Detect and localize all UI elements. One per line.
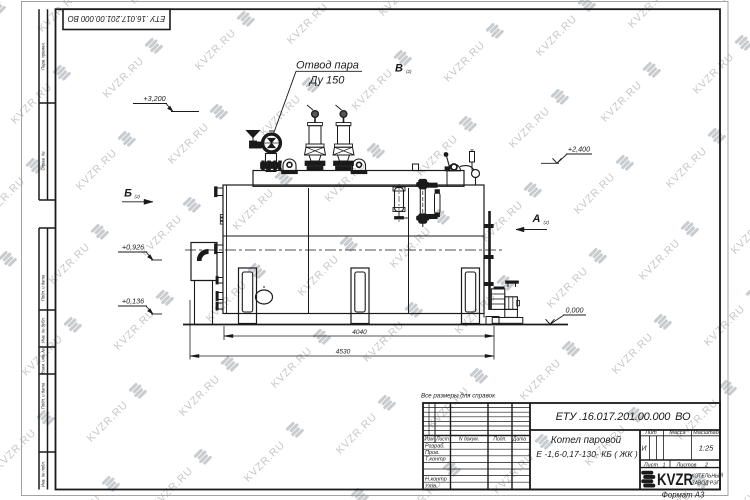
svg-text:Н.контр: Н.контр	[425, 477, 447, 483]
svg-text:(2): (2)	[135, 194, 141, 199]
svg-text:Листов: Листов	[675, 462, 696, 468]
svg-text:Масса: Масса	[669, 430, 685, 436]
svg-text:Масштаб: Масштаб	[693, 430, 720, 436]
svg-text:+0,136: +0,136	[122, 297, 144, 306]
svg-text:Т.контр: Т.контр	[425, 457, 446, 463]
svg-text:2: 2	[704, 462, 708, 468]
svg-text:Отвод пара: Отвод пара	[296, 60, 359, 72]
svg-text:ЕТУ .16.017.201.00.000 ВО: ЕТУ .16.017.201.00.000 ВО	[68, 14, 166, 23]
svg-text:N докум.: N докум.	[459, 437, 479, 443]
svg-text:КОТЕЛЬНЫЙ: КОТЕЛЬНЫЙ	[692, 472, 724, 480]
svg-text:Лист: Лист	[643, 462, 659, 468]
svg-text:Подп. и дата: Подп. и дата	[41, 382, 46, 409]
svg-text:+0,926: +0,926	[122, 243, 144, 252]
svg-text:ЗАВОД РЭП: ЗАВОД РЭП	[692, 481, 721, 487]
svg-text:KVZR: KVZR	[657, 471, 693, 490]
svg-text:Перв. примен.: Перв. примен.	[41, 42, 46, 70]
svg-text:Е -1,6-0,17-130- КБ ( ЖК ): Е -1,6-0,17-130- КБ ( ЖК )	[536, 449, 638, 459]
svg-text:1: 1	[662, 462, 665, 468]
svg-text:1:25: 1:25	[699, 444, 714, 453]
svg-text:4530: 4530	[336, 349, 351, 356]
svg-text:(2): (2)	[406, 69, 412, 74]
svg-text:Подп. и дата: Подп. и дата	[41, 274, 46, 301]
svg-text:Подп.: Подп.	[493, 437, 506, 443]
svg-text:ЕТУ .16.017.201.00.000 ВО: ЕТУ .16.017.201.00.000 ВО	[556, 411, 691, 423]
svg-text:Изм: Изм	[424, 437, 434, 443]
svg-text:Инв. № дубл.: Инв. № дубл.	[41, 317, 46, 343]
svg-text:Дата: Дата	[512, 437, 526, 443]
svg-text:+3,200: +3,200	[143, 94, 165, 103]
svg-text:А: А	[532, 213, 541, 225]
svg-text:Разраб.: Разраб.	[425, 444, 445, 450]
svg-text:0,000: 0,000	[566, 306, 584, 315]
svg-text:Справ. №: Справ. №	[41, 151, 46, 170]
svg-text:Все размеры для справок: Все размеры для справок	[421, 393, 496, 400]
svg-text:Лит: Лит	[644, 430, 657, 436]
svg-text:Б: Б	[124, 188, 132, 200]
svg-text:Формат А3: Формат А3	[662, 491, 705, 500]
svg-text:Утв.: Утв.	[424, 483, 438, 489]
svg-text:Инв. № подл.: Инв. № подл.	[41, 461, 46, 487]
svg-text:Котел паровой: Котел паровой	[551, 435, 622, 446]
svg-text:+2,400: +2,400	[568, 145, 590, 154]
svg-text:Пров.: Пров.	[425, 450, 440, 456]
svg-text:4040: 4040	[352, 329, 367, 336]
svg-text:Ду 150: Ду 150	[308, 75, 346, 87]
svg-text:В: В	[395, 63, 403, 75]
svg-text:Лист: Лист	[435, 437, 449, 443]
svg-text:(2): (2)	[544, 220, 550, 225]
svg-text:Взам. инв. №: Взам. инв. №	[41, 348, 46, 374]
